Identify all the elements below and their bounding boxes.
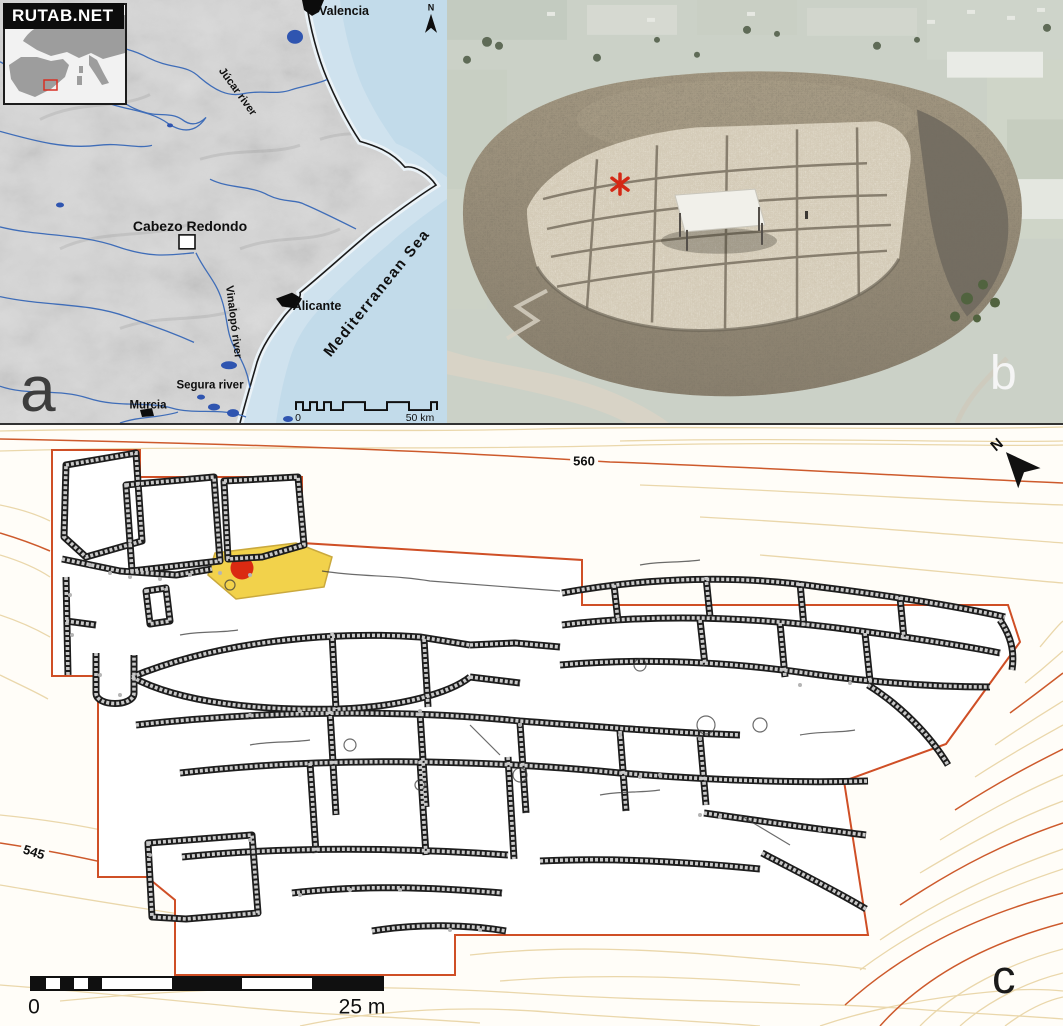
photo-b-svg [447, 0, 1063, 423]
panel-c-site-plan: 560 545 N 0 25 m c [0, 425, 1063, 1026]
scalebar-a-zero: 0 [295, 413, 301, 423]
label-murcia: Murcia [129, 400, 166, 412]
person [805, 211, 808, 219]
scalebar-a-max: 50 km [406, 413, 435, 423]
scalebar-c-icon [30, 976, 384, 991]
label-valencia: Valencia [319, 5, 369, 18]
scalebar-c-zero: 0 [28, 997, 40, 1018]
site-square-marker [179, 235, 195, 249]
panel-a-location-map: Valencia Júcar river Cabezo Redondo Vina… [0, 0, 447, 423]
panel-b-letter: b [990, 350, 1017, 398]
plan-c-svg [0, 425, 1063, 1026]
watermark-badge: RUTAB.NET [3, 3, 124, 29]
scalebar-c-max: 25 m [339, 997, 386, 1018]
figure-cabezo-redondo: Valencia Júcar river Cabezo Redondo Vina… [0, 0, 1063, 1026]
panel-a-letter: a [20, 357, 56, 421]
panel-c-letter: c [992, 953, 1016, 1000]
north-label-a: N [428, 4, 435, 13]
label-cabezo-redondo: Cabezo Redondo [133, 219, 247, 233]
label-segura-river: Segura river [176, 380, 243, 392]
label-alicante: Alicante [293, 300, 342, 313]
contour-label-560: 560 [570, 455, 598, 468]
panel-b-aerial-photo: b [447, 0, 1063, 423]
canopy-roof [675, 189, 765, 232]
canopy-shadow [661, 228, 777, 254]
